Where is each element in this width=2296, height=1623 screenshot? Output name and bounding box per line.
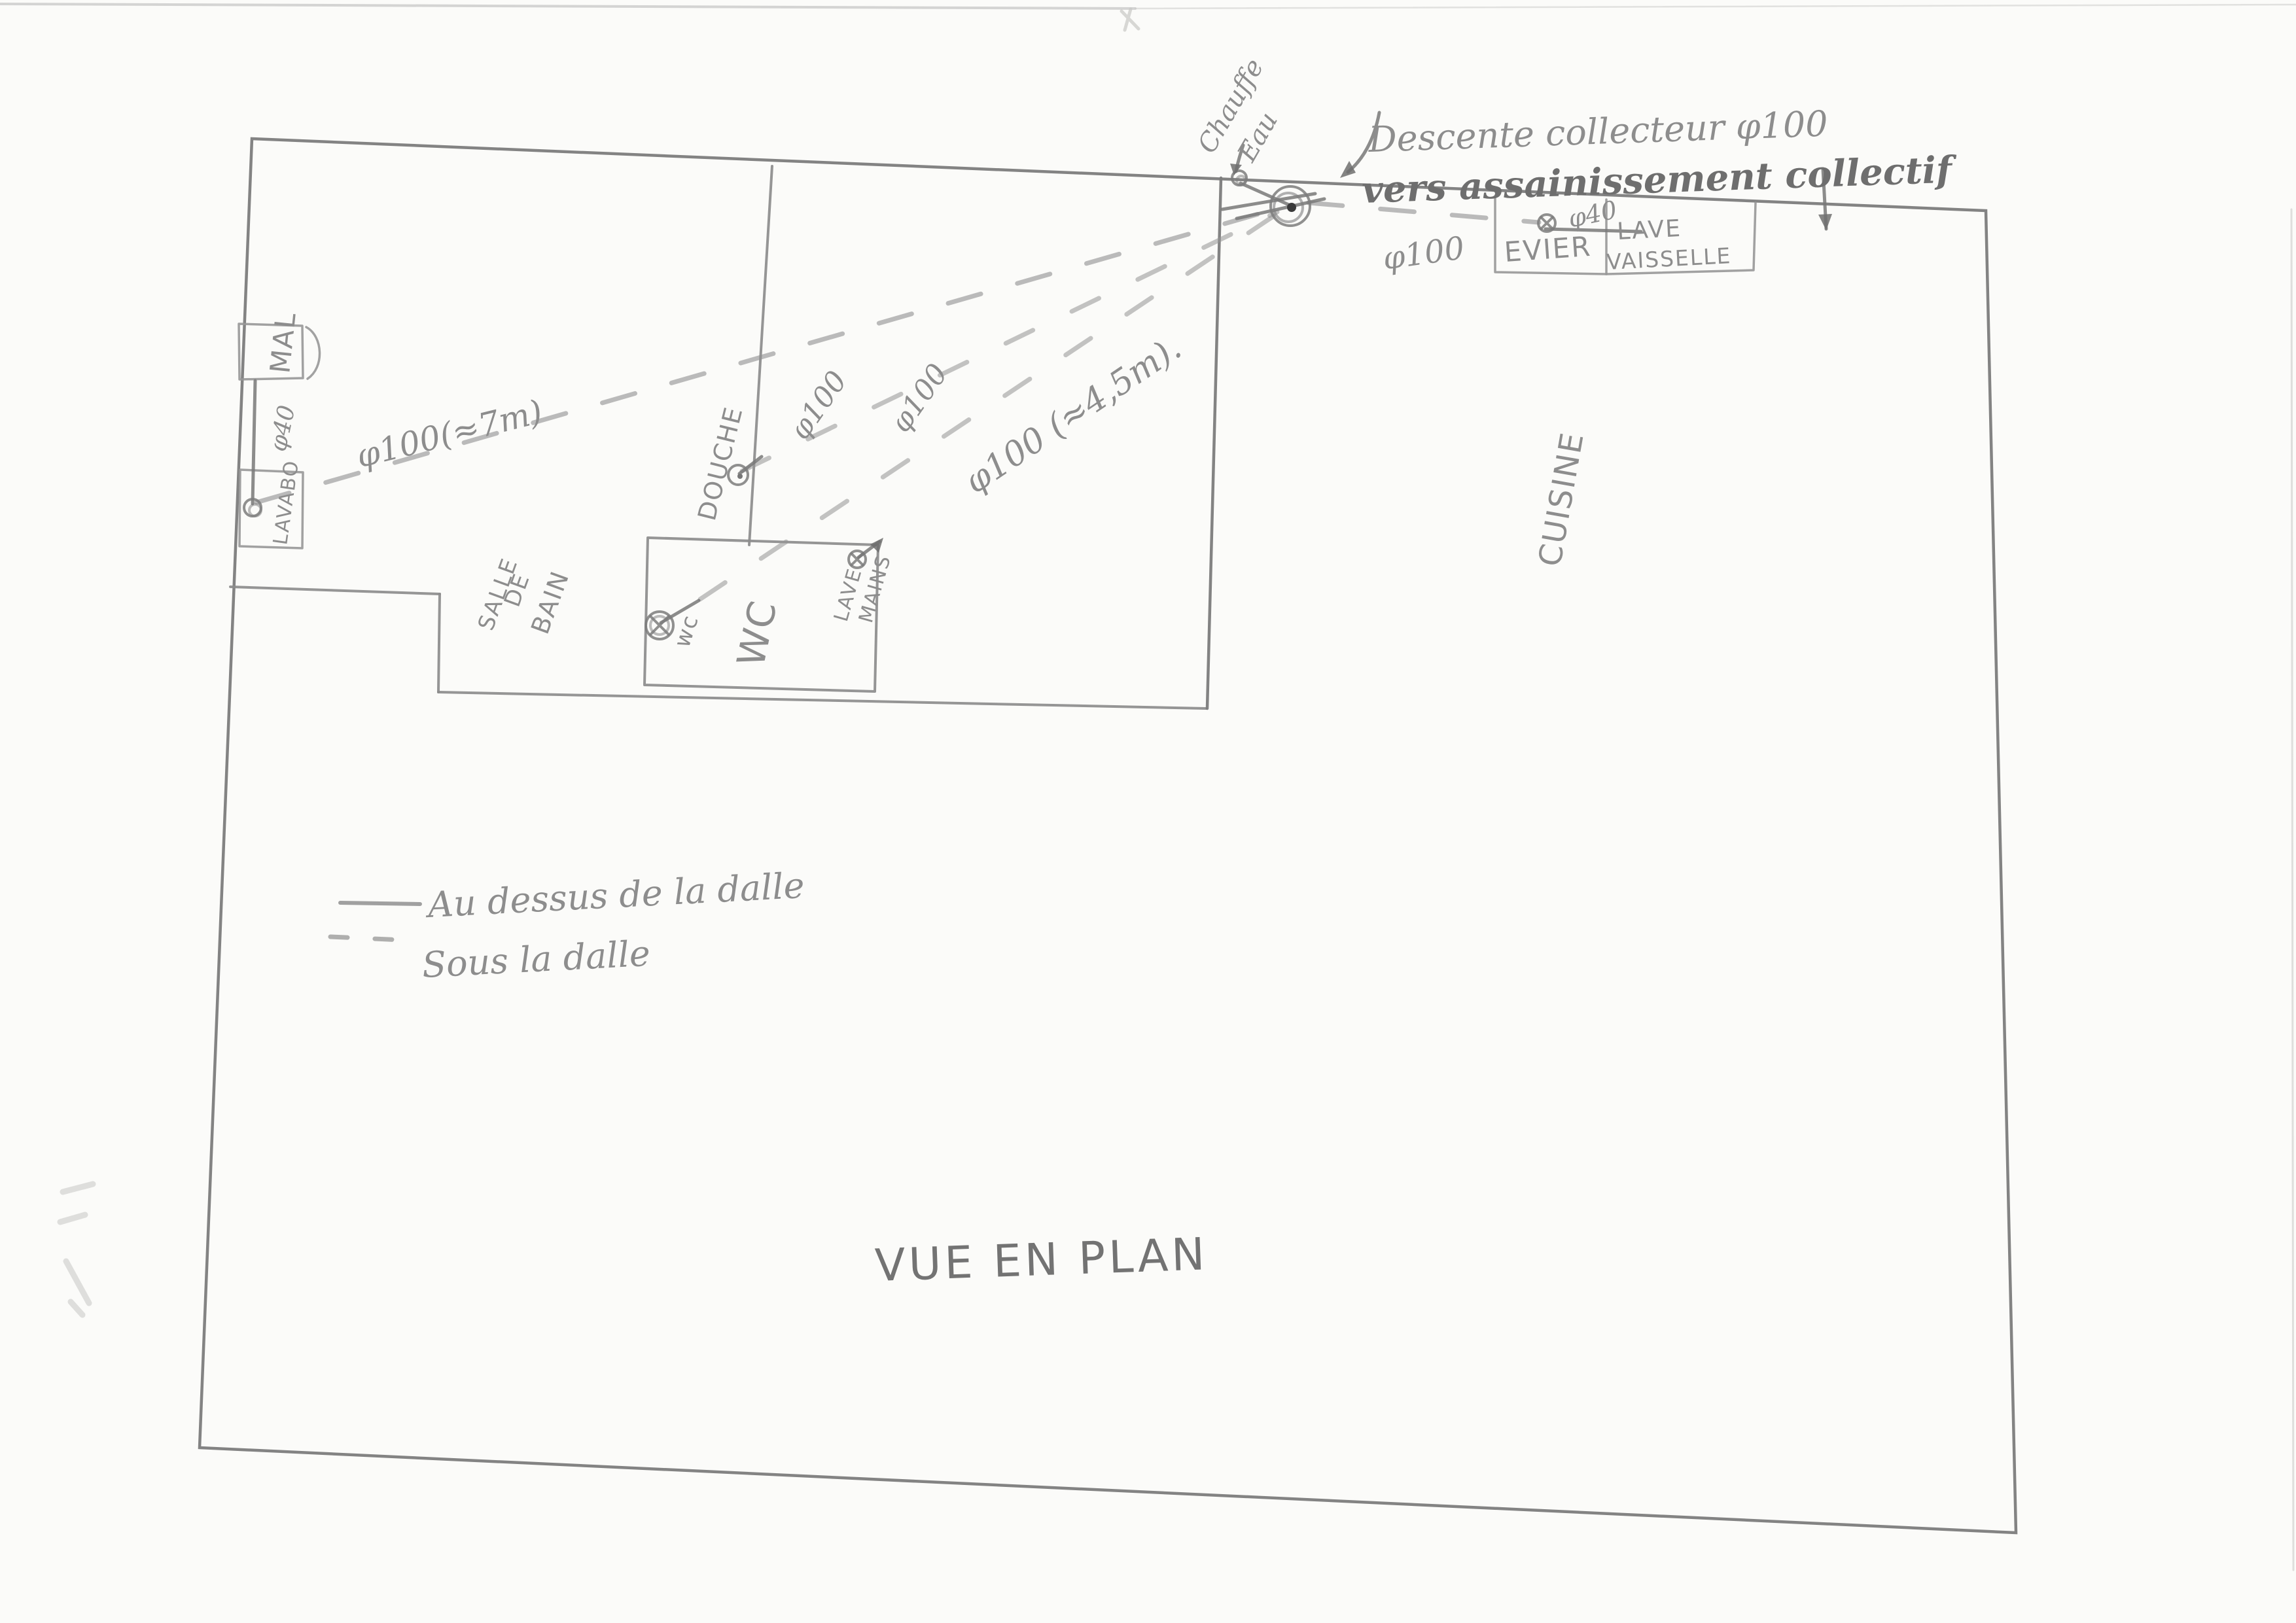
plan-drawing: Descente collecteur φ100 vers assainisse… [0,0,2296,1623]
scan-top-mark [1122,9,1139,30]
collector-junction-icon [1271,186,1310,226]
building-outline [200,139,2016,1533]
lave-vaisselle-label-2: VAISSELLE [1606,243,1732,275]
washing-machine-brace [306,327,320,379]
collector-note-arrow-head [1340,161,1356,178]
wall-bath-south-upper [230,587,440,594]
cuisine-label: CUISINE [1532,429,1591,569]
legend-above-slab-label: Au dessus de la dalle [423,865,805,926]
scan-right-edge [2291,209,2293,1570]
wc-drain-icon [646,612,673,639]
pipe-label-wc-length: φ100 (≈4,5m). [958,328,1189,502]
margin-smudges [60,1184,93,1315]
pipe-label-evier-run: φ100 [1381,230,1467,277]
lave-vaisselle-label-1: LAVE [1616,215,1682,245]
wc-small-label: wc [669,611,705,650]
page-title: VUE EN PLAN [874,1229,1209,1292]
pipe-label-lavabo-run: φ100(≈7m) [353,393,546,476]
legend-solid-swatch [340,903,420,904]
wall-bath-step [438,594,440,692]
scan-top-edge-right [1135,5,2296,9]
scan-artifacts [0,4,2296,1570]
pipe-wc-to-collector [700,215,1276,599]
scanned-plan-page: Descente collecteur φ100 vers assainisse… [0,0,2296,1623]
wc-room-label: WC [728,596,786,671]
chauffe-arrow-head [1230,164,1242,175]
wall-block-bottom [438,692,1206,708]
pipe-label-douche-run: φ100 [783,365,854,445]
pipe-label-lavabo-phi40: φ40 [265,403,301,454]
descente-tick-arrow-head [1818,214,1832,230]
washing-machine-label: MAL [264,310,302,375]
legend-below-slab-label: Sous la dalle [421,933,651,986]
pipe-phi40-lavabo [253,381,255,504]
legend: Au dessus de la dalle Sous la dalle [330,865,805,986]
lave-mains-arrow-head [870,538,883,553]
annotations: Descente collecteur φ100 vers assainisse… [264,54,1958,671]
outer-wall [200,139,2016,1533]
collector-note-line2: vers assainissement collectif [1361,148,1958,212]
collector-note-line1: Descente collecteur φ100 [1367,103,1828,161]
evier-label: EVIER [1503,230,1592,268]
douche-label: DOUCHE [692,404,749,523]
legend-dashed-swatch [330,937,417,941]
scan-top-edge [0,4,1135,9]
salle-de-bain-label-3: BAIN [525,567,574,638]
